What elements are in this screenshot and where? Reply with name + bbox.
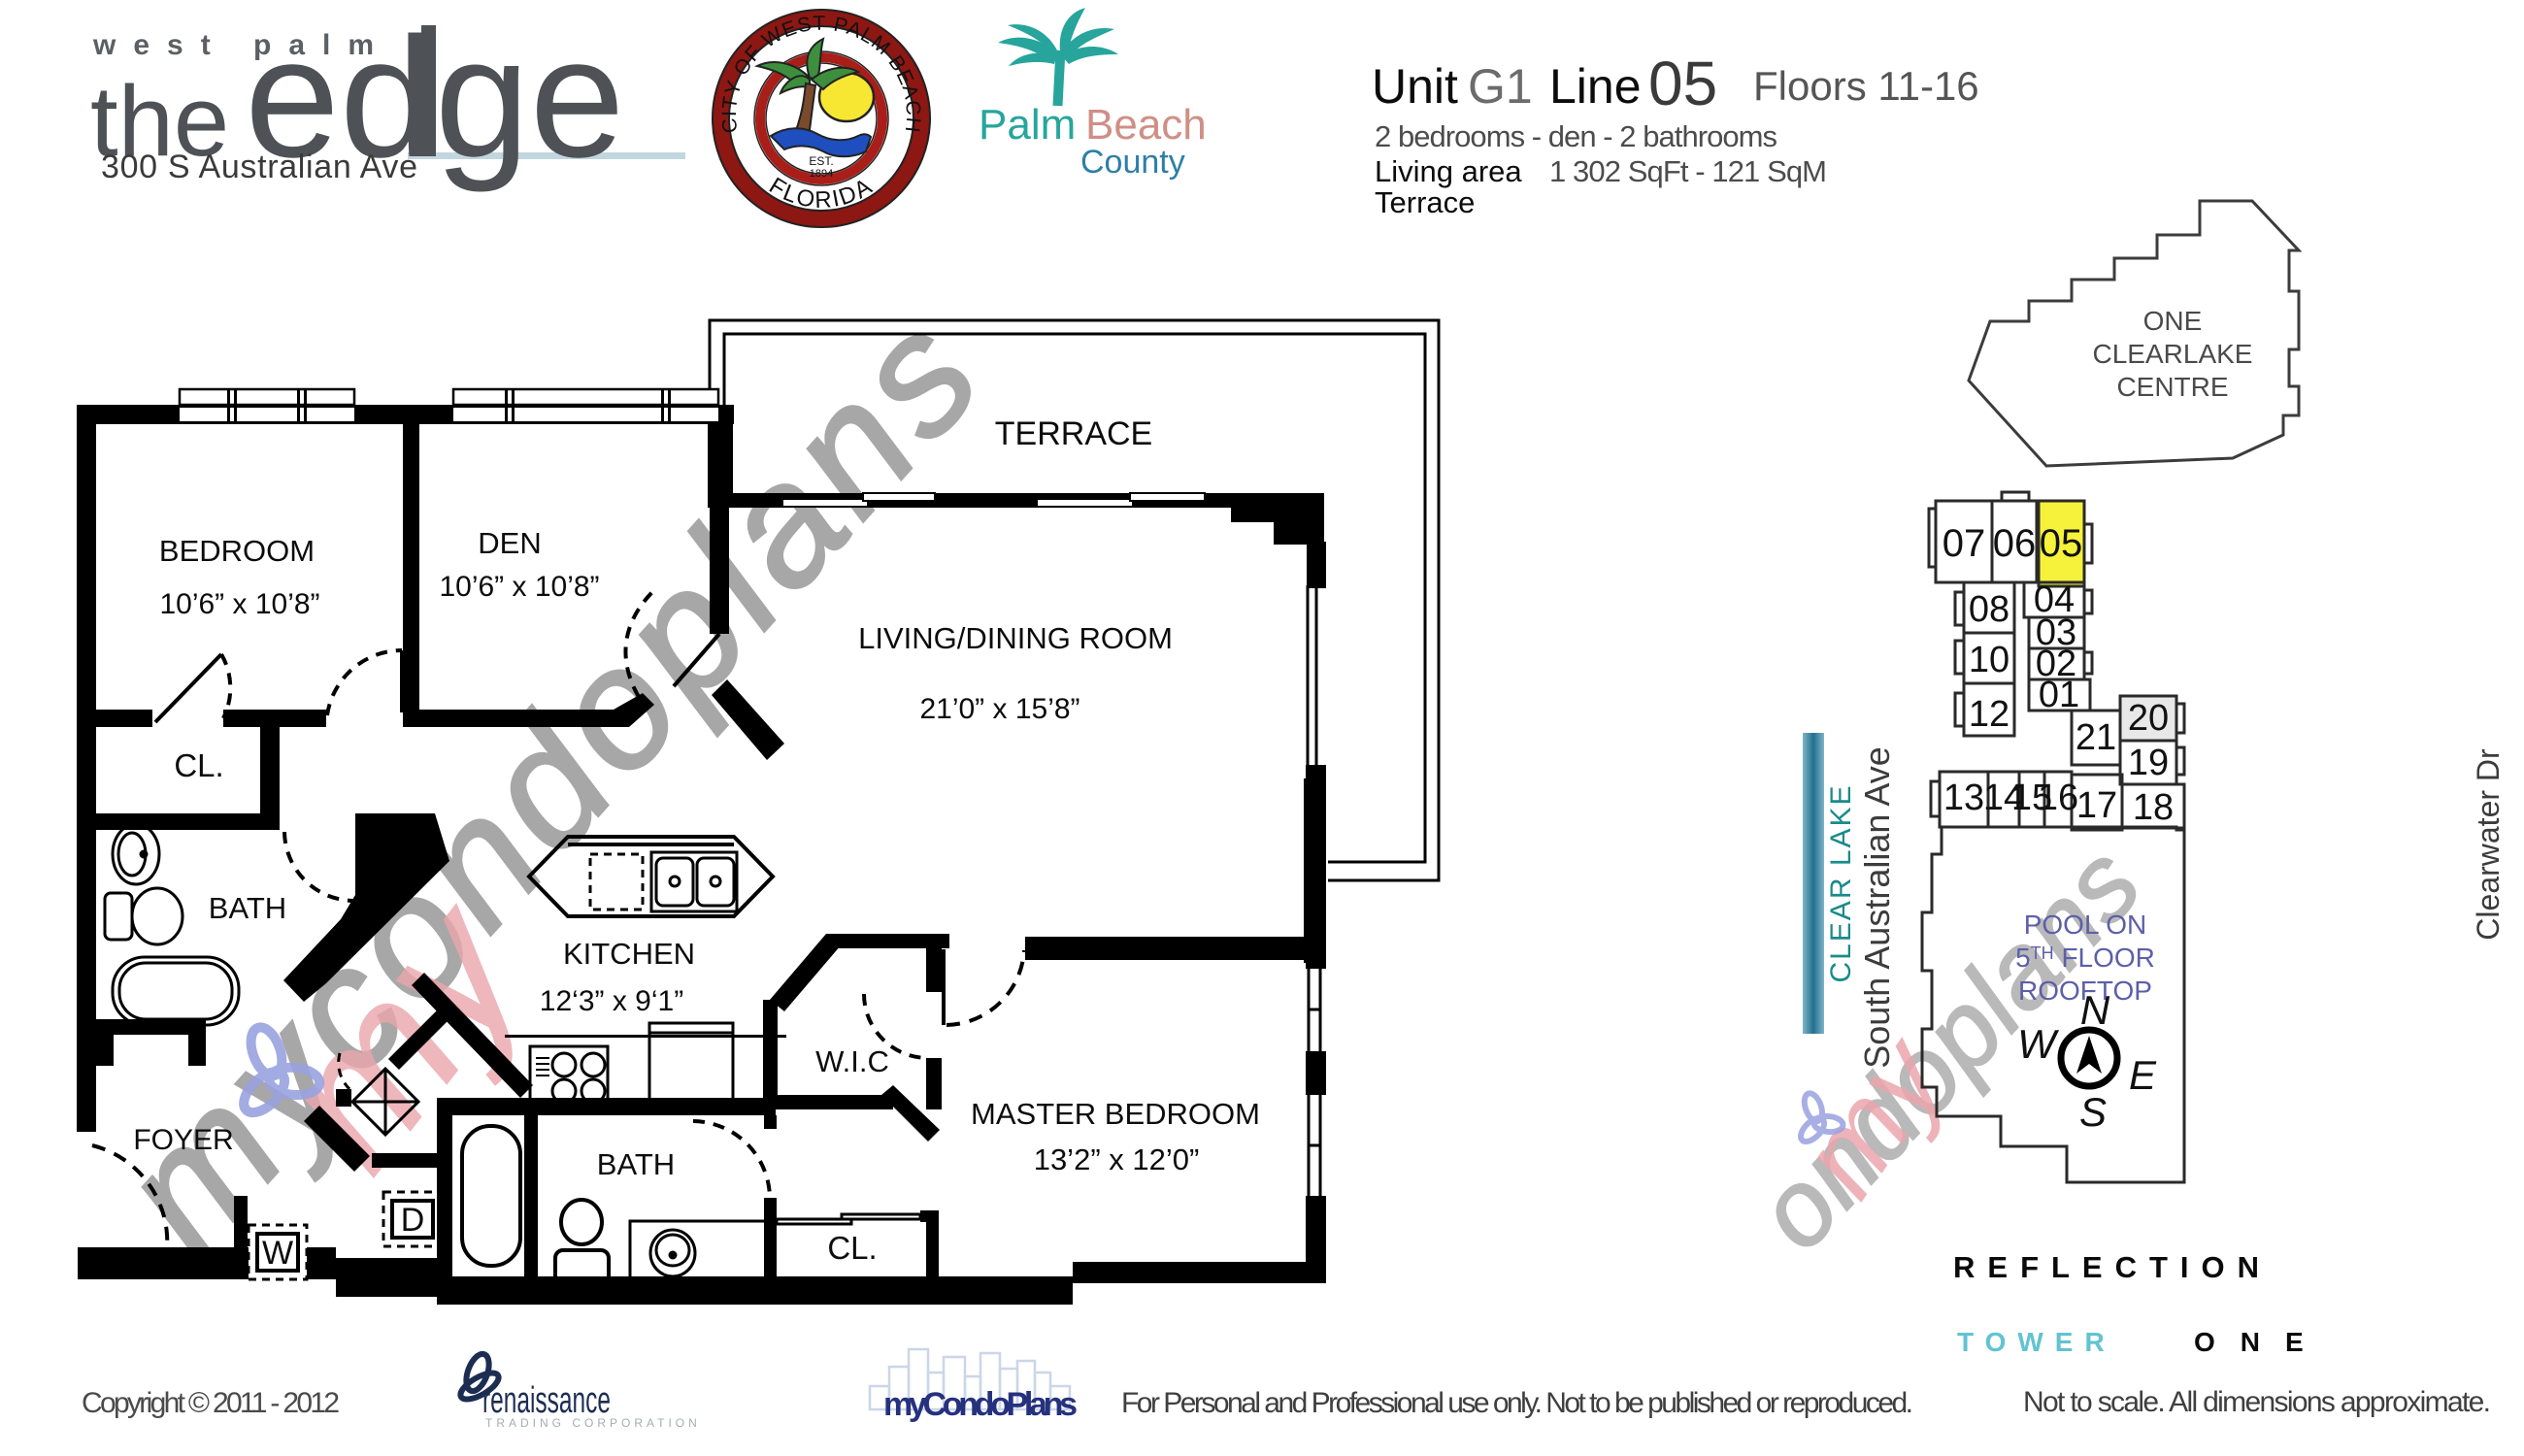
svg-text:1894: 1894 bbox=[810, 168, 833, 180]
svg-text:06: 06 bbox=[1993, 522, 2037, 565]
svg-text:South Australian Ave: South Australian Ave bbox=[1857, 746, 1897, 1069]
svg-text:renaissance: renaissance bbox=[482, 1380, 611, 1421]
svg-text:Copyright © 2011 - 2012: Copyright © 2011 - 2012 bbox=[82, 1387, 340, 1419]
svg-text:18: 18 bbox=[2133, 787, 2174, 828]
svg-text:01: 01 bbox=[2039, 675, 2079, 715]
svg-text:W: W bbox=[262, 1235, 293, 1272]
svg-text:W.I.C: W.I.C bbox=[815, 1044, 889, 1078]
svg-text:KITCHEN: KITCHEN bbox=[563, 937, 695, 971]
svg-text:Living area: Living area bbox=[1375, 154, 1522, 188]
svg-text:Floors 11-16: Floors 11-16 bbox=[1753, 63, 1979, 109]
svg-text:W: W bbox=[2017, 1021, 2059, 1067]
svg-text:EST.: EST. bbox=[809, 154, 833, 168]
svg-text:POOL ON: POOL ON bbox=[2024, 910, 2147, 940]
svg-text:Line: Line bbox=[1549, 59, 1642, 114]
svg-text:Unit: Unit bbox=[1372, 59, 1458, 114]
svg-text:13’2” x 12’0”: 13’2” x 12’0” bbox=[1034, 1142, 1200, 1176]
svg-text:2 bedrooms - den - 2 bathrooms: 2 bedrooms - den - 2 bathrooms bbox=[1375, 119, 1777, 153]
svg-text:CLEARLAKE: CLEARLAKE bbox=[2093, 339, 2253, 369]
svg-text:TERRACE: TERRACE bbox=[995, 415, 1152, 452]
svg-text:Not to scale. All dimensions: Not to scale. All dimensions approximate… bbox=[2023, 1386, 2491, 1418]
svg-text:G1: G1 bbox=[1468, 59, 1533, 114]
svg-text:TOWER: TOWER bbox=[1957, 1327, 2116, 1357]
svg-text:BATH: BATH bbox=[597, 1147, 675, 1181]
svg-text:myCondoPlans: myCondoPlans bbox=[883, 1386, 1078, 1423]
svg-text:S: S bbox=[2079, 1089, 2107, 1135]
svg-text:Clearwater Dr: Clearwater Dr bbox=[2471, 748, 2506, 941]
svg-text:300 S Australian Ave: 300 S Australian Ave bbox=[101, 149, 417, 185]
svg-text:13: 13 bbox=[1943, 778, 1984, 818]
svg-text:CLEAR LAKE: CLEAR LAKE bbox=[1825, 783, 1857, 982]
svg-text:D: D bbox=[401, 1202, 425, 1239]
svg-text:CL.: CL. bbox=[174, 747, 223, 783]
svg-text:12: 12 bbox=[1969, 694, 2009, 735]
svg-text:MASTER BEDROOM: MASTER BEDROOM bbox=[971, 1097, 1260, 1131]
svg-text:16: 16 bbox=[2038, 778, 2078, 818]
svg-text:DEN: DEN bbox=[478, 526, 541, 560]
svg-text:REFLECTION: REFLECTION bbox=[1953, 1250, 2272, 1284]
svg-text:BEDROOM: BEDROOM bbox=[159, 534, 315, 568]
svg-text:10: 10 bbox=[1969, 640, 2009, 680]
svg-text:05: 05 bbox=[2040, 522, 2083, 565]
svg-text:N: N bbox=[2080, 987, 2110, 1033]
svg-text:E: E bbox=[2129, 1052, 2157, 1098]
svg-text:For Personal and Professional: For Personal and Professional use only. … bbox=[1121, 1387, 1913, 1419]
svg-text:20: 20 bbox=[2128, 698, 2169, 739]
svg-text:CENTRE: CENTRE bbox=[2116, 372, 2228, 402]
svg-text:BATH: BATH bbox=[209, 891, 286, 925]
svg-text:ONE: ONE bbox=[2194, 1327, 2329, 1357]
svg-text:Beach: Beach bbox=[1085, 101, 1207, 149]
svg-text:ONE: ONE bbox=[2143, 306, 2203, 336]
svg-text:10’6” x 10’8”: 10’6” x 10’8” bbox=[439, 571, 599, 603]
svg-text:1 302 SqFt - 121 SqM: 1 302 SqFt - 121 SqM bbox=[1549, 154, 1827, 188]
svg-text:07: 07 bbox=[1943, 522, 1986, 565]
svg-text:21: 21 bbox=[2076, 717, 2116, 758]
svg-text:County: County bbox=[1080, 144, 1185, 181]
svg-text:12‘3” x 9‘1”: 12‘3” x 9‘1” bbox=[540, 985, 683, 1017]
svg-text:08: 08 bbox=[1969, 589, 2009, 630]
svg-text:19: 19 bbox=[2128, 743, 2169, 783]
svg-text:Palm: Palm bbox=[979, 101, 1076, 149]
svg-text:LIVING/DINING ROOM: LIVING/DINING ROOM bbox=[858, 621, 1173, 655]
svg-text:21’0” x 15’8”: 21’0” x 15’8” bbox=[919, 693, 1079, 725]
svg-text:Terrace: Terrace bbox=[1375, 185, 1475, 219]
svg-text:17: 17 bbox=[2076, 785, 2117, 826]
svg-text:10’6” x 10’8”: 10’6” x 10’8” bbox=[159, 588, 319, 620]
svg-text:05: 05 bbox=[1648, 49, 1717, 118]
svg-text:TRADING CORPORATION: TRADING CORPORATION bbox=[485, 1416, 701, 1430]
svg-text:CL.: CL. bbox=[827, 1230, 877, 1266]
svg-text:FOYER: FOYER bbox=[133, 1124, 233, 1156]
